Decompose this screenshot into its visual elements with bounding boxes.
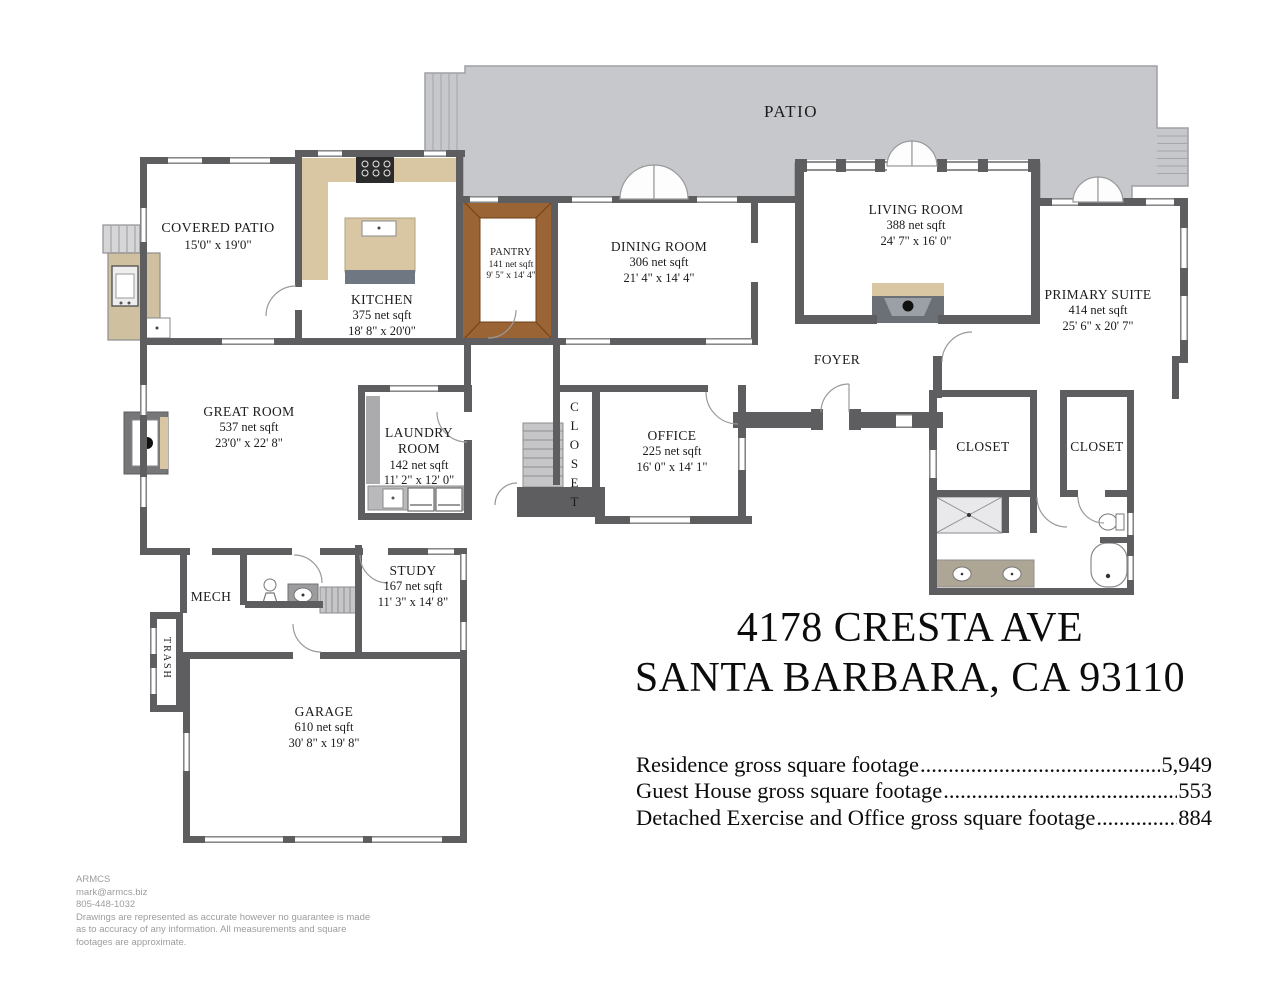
footage-label: Residence gross square footage xyxy=(636,752,919,778)
dot-leader xyxy=(1096,805,1177,831)
footage-value: 5,949 xyxy=(1161,752,1212,778)
room-label-pantry: PANTRY 141 net sqft 9' 5" x 14' 4" xyxy=(471,247,551,283)
room-label-foyer: FOYER xyxy=(797,352,877,368)
room-label-great-room: GREAT ROOM 537 net sqft 23'0" x 22' 8" xyxy=(169,404,329,451)
floor-plan-drawing xyxy=(0,0,1280,989)
room-name: FOYER xyxy=(797,352,877,368)
room-dims: 21' 4" x 14' 4" xyxy=(579,271,739,286)
room-sqft: 414 net sqft xyxy=(1013,303,1183,318)
room-dims: 18' 8" x 20'0" xyxy=(317,324,447,339)
room-label-trash: TRASH xyxy=(161,637,172,697)
room-name: STUDY xyxy=(353,563,473,579)
room-name: CLOSET xyxy=(943,439,1023,455)
room-label-closet-1: CLOSET xyxy=(943,439,1023,455)
room-name: PATIO xyxy=(746,102,836,123)
room-name: CLOSET xyxy=(1062,439,1132,455)
room-name: GARAGE xyxy=(249,704,399,720)
room-label-closet-hall: CLOSET xyxy=(566,399,582,495)
room-label-kitchen: KITCHEN 375 net sqft 18' 8" x 20'0" xyxy=(317,292,447,339)
room-dims: 15'0" x 19'0" xyxy=(138,237,298,253)
room-sqft: 610 net sqft xyxy=(249,720,399,735)
room-sqft: 225 net sqft xyxy=(602,444,742,459)
floor-plan-page: { "rooms": [ {"name":"PATIO"}, {"name":"… xyxy=(0,0,1280,989)
footage-row: Residence gross square footage 5,949 xyxy=(636,752,1212,778)
room-name: PANTRY xyxy=(471,247,551,260)
company-email: mark@armcs.biz xyxy=(76,887,370,900)
room-sqft: 375 net sqft xyxy=(317,308,447,323)
room-name: LIVING ROOM xyxy=(836,202,996,218)
address-line-2: SANTA BARBARA, CA 93110 xyxy=(600,654,1220,704)
room-label-dining-room: DINING ROOM 306 net sqft 21' 4" x 14' 4" xyxy=(579,239,739,286)
room-dims: 11' 3" x 14' 8" xyxy=(353,595,473,610)
room-label-patio: PATIO xyxy=(746,102,836,123)
disclaimer-line: footages are approximate. xyxy=(76,937,370,950)
room-name: MECH xyxy=(176,589,246,605)
room-dims: 25' 6" x 20' 7" xyxy=(1013,319,1183,334)
room-dims: 24' 7" x 16' 0" xyxy=(836,234,996,249)
room-sqft: 306 net sqft xyxy=(579,255,739,270)
square-footage-table: Residence gross square footage 5,949 Gue… xyxy=(636,752,1212,831)
room-name: GREAT ROOM xyxy=(169,404,329,420)
footage-value: 553 xyxy=(1178,778,1212,804)
footage-row: Guest House gross square footage 553 xyxy=(636,778,1212,804)
address-line-1: 4178 CRESTA AVE xyxy=(600,604,1220,654)
room-sqft: 141 net sqft xyxy=(471,260,551,272)
room-name: OFFICE xyxy=(602,428,742,444)
room-label-office: OFFICE 225 net sqft 16' 0" x 14' 1" xyxy=(602,428,742,475)
dot-leader xyxy=(943,778,1177,804)
room-sqft: 142 net sqft xyxy=(375,458,463,473)
drafter-credits: ARMCS mark@armcs.biz 805-448-1032 Drawin… xyxy=(76,874,370,949)
room-name: COVERED PATIO xyxy=(138,220,298,237)
room-label-covered-patio: COVERED PATIO 15'0" x 19'0" xyxy=(138,220,298,253)
room-label-living-room: LIVING ROOM 388 net sqft 24' 7" x 16' 0" xyxy=(836,202,996,249)
disclaimer-line: as to accuracy of any information. All m… xyxy=(76,924,370,937)
room-name: DINING ROOM xyxy=(579,239,739,255)
room-label-garage: GARAGE 610 net sqft 30' 8" x 19' 8" xyxy=(249,704,399,751)
room-name: KITCHEN xyxy=(317,292,447,308)
room-label-mech: MECH xyxy=(176,589,246,605)
disclaimer-line: Drawings are represented as accurate how… xyxy=(76,912,370,925)
room-dims: 30' 8" x 19' 8" xyxy=(249,736,399,751)
footage-value: 884 xyxy=(1178,805,1212,831)
room-label-primary-suite: PRIMARY SUITE 414 net sqft 25' 6" x 20' … xyxy=(1013,287,1183,334)
room-sqft: 167 net sqft xyxy=(353,579,473,594)
dot-leader xyxy=(920,752,1160,778)
company-name: ARMCS xyxy=(76,874,370,887)
room-sqft: 388 net sqft xyxy=(836,218,996,233)
room-dims: 16' 0" x 14' 1" xyxy=(602,460,742,475)
footage-label: Guest House gross square footage xyxy=(636,778,942,804)
footage-label: Detached Exercise and Office gross squar… xyxy=(636,805,1095,831)
room-label-study: STUDY 167 net sqft 11' 3" x 14' 8" xyxy=(353,563,473,610)
room-name: LAUNDRY ROOM xyxy=(375,425,463,458)
property-address: 4178 CRESTA AVE SANTA BARBARA, CA 93110 xyxy=(600,604,1220,703)
room-dims: 9' 5" x 14' 4" xyxy=(471,271,551,283)
room-sqft: 537 net sqft xyxy=(169,420,329,435)
room-label-laundry-room: LAUNDRY ROOM 142 net sqft 11' 2" x 12' 0… xyxy=(375,425,463,488)
room-name: PRIMARY SUITE xyxy=(1013,287,1183,303)
company-phone: 805-448-1032 xyxy=(76,899,370,912)
footage-row: Detached Exercise and Office gross squar… xyxy=(636,805,1212,831)
room-dims: 23'0" x 22' 8" xyxy=(169,436,329,451)
room-label-closet-2: CLOSET xyxy=(1062,439,1132,455)
room-dims: 11' 2" x 12' 0" xyxy=(375,473,463,488)
